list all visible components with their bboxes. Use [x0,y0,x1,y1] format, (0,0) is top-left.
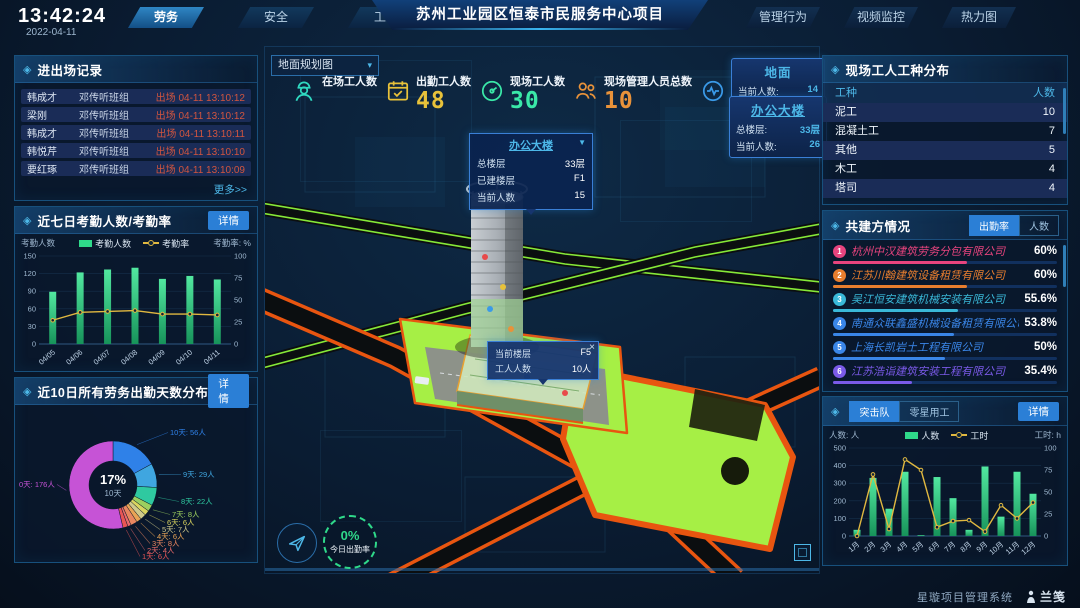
tab-odd-jobs[interactable]: 零星用工 [899,401,959,422]
svg-text:60: 60 [28,304,36,313]
stat-value: 30 [510,89,565,113]
svg-text:200: 200 [833,496,846,505]
partner-rate: 55.6% [1024,293,1057,305]
svg-text:0: 0 [32,340,36,349]
tower-tooltip-title[interactable]: 办公大楼 [477,137,585,153]
partner-rate: 60% [1034,269,1057,281]
detail-button[interactable]: 详情 [208,374,249,408]
current-date: 2022-04-11 [26,27,106,38]
partner-row: 2江苏川翰建筑设备租赁有限公司60% [823,264,1067,288]
partner-rate: 50% [1034,341,1057,353]
partner-row: 5上海长凯岩土工程有限公司50% [823,336,1067,360]
logo-text: 兰笺 [1040,588,1066,605]
entry-exit-row: 韩悦芹邓传听班组出场 04-11 13:10:10 [21,143,251,158]
entry-exit-list: 韩成才邓传听班组出场 04-11 13:10:12梁刚邓传听班组出场 04-11… [15,83,257,176]
building-card-row: 总楼层:33层 [736,122,820,136]
legend-line-swatch [143,240,159,246]
legend-bar: 人数 [905,429,939,442]
entry-exit-row: 韩成才邓传听班组出场 04-11 13:10:12 [21,89,251,104]
worker-type-row: 塔司4 [823,179,1067,198]
worker-name: 韩成才 [27,125,79,140]
tower-tooltip-row: 总楼层33层 [477,156,585,170]
panel-header: ◈ 进出场记录 [15,56,257,83]
tab-attendance-rate[interactable]: 出勤率 [969,215,1019,236]
diamond-icon: ◈ [831,63,839,76]
partner-name: 吴江恒安建筑机械安装有限公司 [851,291,1019,307]
exit-event: 出场 04-11 13:10:12 [156,89,245,104]
building-card-value: 26 [809,139,820,153]
tower-tooltip-rows: 总楼层33层已建楼层F1当前人数15 [477,156,585,204]
scrollbar[interactable] [1063,88,1066,134]
worker-icon [291,76,317,106]
legend-line: 工时 [951,429,988,442]
footer: 星璇项目管理系统 兰笺 [917,588,1066,605]
floor-tooltip-row: 当前楼层F5 [495,347,591,360]
svg-text:25: 25 [234,318,242,327]
svg-text:04/09: 04/09 [147,348,167,367]
system-name: 星璇项目管理系统 [917,589,1013,605]
legend-line-swatch [951,432,967,438]
panel-title: 近10日所有劳务出勤天数分布 [37,382,208,401]
tab-safety[interactable]: 安全 [238,7,314,28]
building-card-rows: 总楼层:33层当前人数:26 [736,122,820,153]
worker-type-name: 混凝土工 [835,122,879,141]
panel-title: 进出场记录 [37,60,102,79]
team-name: 邓传听班组 [79,107,156,122]
site-3d-viewport[interactable]: 地面规划图 ▾ 在场工人数出勤工人数48现场工人数30现场管理人员总数10异常出… [264,46,820,574]
rank-badge: 3 [833,293,846,306]
partner-rate: 35.4% [1024,365,1057,377]
svg-text:04/10: 04/10 [174,348,194,367]
tab-management-behavior[interactable]: 管理行为 [746,7,820,28]
stat-calendar: 出勤工人数48 [385,73,471,113]
floor-tooltip-rows: 当前楼层F5工人人数10人 [495,347,591,375]
tower-tooltip-row: 当前人数15 [477,190,585,204]
svg-text:100: 100 [1044,444,1057,453]
stat-value: 48 [416,89,471,113]
view-tabs: 管理行为 视频监控 热力图 [746,7,1016,28]
team-name: 邓传听班组 [79,161,156,176]
top-bar: 13:42:24 2022-04-11 劳务 安全 工期 苏州工业园区恒泰市民服… [0,0,1080,46]
rank-badge: 2 [833,269,846,282]
svg-text:50: 50 [234,296,242,305]
svg-text:100: 100 [833,514,846,523]
worker-type-row: 混凝土工7 [823,122,1067,141]
building-card-label: 当前人数: [736,139,777,153]
tower-tooltip-label: 已建楼层 [477,173,515,187]
svg-text:1月: 1月 [847,540,862,554]
worker-type-row: 木工4 [823,160,1067,179]
navigation-arrow-icon [286,532,308,554]
svg-text:150: 150 [23,252,36,261]
attendance-chart-panel: ◈ 近七日考勤人数/考勤率 详情 考勤人数 考勤人数考勤率 考勤率: % 030… [14,206,258,372]
legend-label: 考勤率 [162,237,189,250]
partner-bar-fill [833,381,912,384]
diamond-icon: ◈ [23,63,31,76]
tower-tooltip-label: 当前人数 [477,190,515,204]
partner-name: 南通众联鑫盛机械设备租赁有限公司 [851,315,1019,331]
building-card-label: 总楼层: [736,122,767,136]
stat-label: 现场工人数 [510,73,565,89]
stat-label: 在场工人数 [322,73,377,89]
svg-text:0天: 176人: 0天: 176人 [19,480,55,489]
worker-name: 梁刚 [27,107,79,122]
tab-labor[interactable]: 劳务 [128,7,204,28]
panel-title: 近七日考勤人数/考勤率 [37,211,171,230]
svg-text:17%: 17% [100,472,126,487]
rank-badge: 5 [833,341,846,354]
partner-bar-track [833,381,1057,384]
entry-exit-row: 韩成才邓传听班组出场 04-11 13:10:11 [21,125,251,140]
worker-name: 韩成才 [27,89,79,104]
entry-exit-row: 要红琢邓传听班组出场 04-11 13:10:09 [21,161,251,176]
col-worker-type: 工种 [835,83,857,103]
partners-tabs: 出勤率 人数 [969,215,1059,236]
worker-types-panel: ◈ 现场工人工种分布 工种 人数 泥工10混凝土工7其他5木工4塔司4 [822,55,1068,205]
floor-tooltip: × 当前楼层F5工人人数10人 [487,341,599,380]
col-count: 人数 [1033,83,1055,103]
legend-label: 考勤人数 [95,237,131,250]
svg-text:04/11: 04/11 [202,348,222,367]
legend-bar: 考勤人数 [79,237,131,250]
worker-types-table-body: 泥工10混凝土工7其他5木工4塔司4 [823,103,1067,198]
svg-text:04/05: 04/05 [37,348,57,367]
building-card-value: 33层 [800,122,820,136]
left-axis-label: 人数: 人 [829,429,859,441]
stat-gauge: 现场工人数30 [479,73,565,113]
chart-meta: 人数: 人 人数工时 工时: h [823,426,1067,442]
tower-tooltip-row: 已建楼层F1 [477,173,585,187]
ground-card-title: 地面 [738,62,818,81]
svg-text:120: 120 [23,269,36,278]
rank-badge: 1 [833,245,846,258]
svg-text:500: 500 [833,444,846,453]
svg-text:2月: 2月 [863,540,878,554]
partner-name: 江苏浩诣建筑安装工程有限公司 [851,363,1019,379]
svg-text:300: 300 [833,479,846,488]
svg-text:10月: 10月 [987,540,1005,557]
worker-type-count: 5 [1049,141,1055,160]
left-axis-label: 考勤人数 [21,237,55,249]
tower-tooltip-value: 33层 [565,156,585,170]
page-title: 苏州工业园区恒泰市民服务中心项目 [372,0,708,30]
exit-event: 出场 04-11 13:10:10 [156,143,245,158]
worker-type-name: 泥工 [835,103,857,122]
worker-type-count: 7 [1049,122,1055,141]
stat-worker: 在场工人数 [291,73,377,113]
attendance-bar-line-chart: 0306090120150025507510004/0504/0604/0704… [15,250,255,368]
pulse-icon [700,76,726,106]
svg-text:0: 0 [234,340,238,349]
partner-row-top: 2江苏川翰建筑设备租赁有限公司60% [833,267,1057,283]
detail-button[interactable]: 详情 [208,211,249,230]
building-card-title[interactable]: 办公大楼 [736,100,820,119]
stat-value [322,89,377,113]
entry-exit-row: 梁刚邓传听班组出场 04-11 13:10:12 [21,107,251,122]
today-attendance-gauge: 0% 今日出勤率 [323,515,377,569]
current-time: 13:42:24 [18,5,106,28]
panel-title: 共建方情况 [845,216,910,235]
tab-assault-team[interactable]: 突击队 [849,401,899,422]
worker-marker[interactable] [487,306,493,312]
partner-row: 1杭州中汉建筑劳务分包有限公司60% [823,240,1067,264]
svg-text:6月: 6月 [927,540,942,554]
worker-type-name: 木工 [835,160,857,179]
tab-video-monitor[interactable]: 视频监控 [844,7,918,28]
right-axis-label: 工时: h [1035,429,1061,441]
svg-text:04/08: 04/08 [119,348,139,367]
svg-text:0: 0 [1044,532,1048,541]
close-icon[interactable]: × [589,342,595,353]
partners-list: 1杭州中汉建筑劳务分包有限公司60%2江苏川翰建筑设备租赁有限公司60%3吴江恒… [823,240,1067,384]
worker-type-count: 4 [1049,160,1055,179]
floor-tooltip-label: 当前楼层 [495,347,531,360]
rank-badge: 6 [833,365,846,378]
svg-text:5月: 5月 [911,540,926,554]
svg-text:11月: 11月 [1004,540,1022,557]
building-card-row: 当前人数:26 [736,139,820,153]
chart-legend: 人数工时 [859,429,1034,442]
worker-type-name: 塔司 [835,179,857,198]
panel-header: ◈ 共建方情况 出勤率 人数 [823,211,1067,240]
compass-control[interactable] [277,523,317,563]
worker-type-row: 泥工10 [823,103,1067,122]
stat-label: 现场管理人员总数 [604,73,692,89]
panel-title: 现场工人工种分布 [845,60,949,79]
svg-text:4月: 4月 [895,540,910,554]
exit-event: 出场 04-11 13:10:09 [156,161,245,176]
svg-text:10天: 10天 [105,489,122,498]
panel-header: ◈ 突击队 零星用工 详情 [823,397,1067,426]
tab-heatmap[interactable]: 热力图 [942,7,1016,28]
svg-text:9月: 9月 [975,540,990,554]
clock: 13:42:24 2022-04-11 [18,5,106,38]
svg-text:90: 90 [28,287,36,296]
chevron-down-icon[interactable]: ▼ [578,138,586,147]
floor-tooltip-value: 10人 [572,362,591,375]
vendor-logo: 兰笺 [1025,588,1066,605]
svg-text:75: 75 [234,274,242,283]
gauge-value: 0% [341,529,360,543]
legend-label: 人数 [921,429,939,442]
diamond-icon: ◈ [831,405,839,418]
svg-text:8天: 22人: 8天: 22人 [181,497,213,506]
panel-header: ◈ 近10日所有劳务出勤天数分布 详情 [15,378,257,405]
svg-text:75: 75 [1044,466,1052,475]
entry-exit-panel: ◈ 进出场记录 韩成才邓传听班组出场 04-11 13:10:12梁刚邓传听班组… [14,55,258,201]
stat-value: 10 [604,89,692,113]
svg-text:50: 50 [1044,488,1052,497]
worker-name: 韩悦芹 [27,143,79,158]
partner-name: 杭州中汉建筑劳务分包有限公司 [851,243,1029,259]
worker-marker[interactable] [562,390,568,396]
detail-button[interactable]: 详情 [1018,402,1059,421]
partner-rate: 60% [1034,245,1057,257]
worker-type-row: 其他5 [823,141,1067,160]
legend-bar-swatch [905,432,918,439]
partner-row: 6江苏浩诣建筑安装工程有限公司35.4% [823,360,1067,384]
gauge-icon [479,76,505,106]
tower-tooltip-value: F1 [574,173,585,187]
diamond-icon: ◈ [23,214,31,227]
tower-tooltip-value: 15 [574,190,585,204]
worker-marker[interactable] [500,284,506,290]
more-link[interactable]: 更多>> [214,182,247,197]
team-name: 邓传听班组 [79,125,156,140]
diamond-icon: ◈ [831,219,839,232]
svg-text:7月: 7月 [943,540,958,554]
legend-line: 考勤率 [143,237,189,250]
rank-badge: 4 [833,317,846,330]
exit-event: 出场 04-11 13:10:12 [156,107,245,122]
attendance-days-distribution-panel: ◈ 近10日所有劳务出勤天数分布 详情 10天: 56人9天: 29人8天: 2… [14,377,258,563]
diamond-icon: ◈ [23,385,31,398]
chart-legend: 考勤人数考勤率 [55,237,213,250]
svg-text:0: 0 [842,532,846,541]
floor-tooltip-row: 工人人数10人 [495,362,591,375]
svg-text:8月: 8月 [959,540,974,554]
worker-types-table-header: 工种 人数 [823,83,1067,103]
assault-bar-line-chart: 010020030040050002550751001月2月3月4月5月6月7月… [823,442,1065,560]
right-axis-label: 考勤率: % [213,237,251,249]
partner-rate: 53.8% [1024,317,1057,329]
chart-meta: 考勤人数 考勤人数考勤率 考勤率: % [15,234,257,250]
partner-row-top: 1杭州中汉建筑劳务分包有限公司60% [833,243,1057,259]
svg-text:25: 25 [1044,510,1052,519]
people-icon [573,76,599,106]
svg-text:04/07: 04/07 [92,348,112,367]
tower-tooltip-label: 总楼层 [477,156,506,170]
fullscreen-icon[interactable] [794,544,811,561]
scrollbar[interactable] [1063,245,1066,287]
team-name: 邓传听班组 [79,89,156,104]
svg-text:10天: 56人: 10天: 56人 [170,428,206,437]
assault-team-panel: ◈ 突击队 零星用工 详情 人数: 人 人数工时 工时: h 010020030… [822,396,1068,566]
svg-text:400: 400 [833,461,846,470]
svg-text:1天: 6人: 1天: 6人 [142,552,170,560]
panel-header: ◈ 近七日考勤人数/考勤率 详情 [15,207,257,234]
partner-row: 4南通众联鑫盛机械设备租赁有限公司53.8% [823,312,1067,336]
tower-tooltip: 办公大楼 ▼ 总楼层33层已建楼层F1当前人数15 [469,133,593,210]
panel-header: ◈ 现场工人工种分布 [823,56,1067,83]
gauge-label: 今日出勤率 [330,544,370,555]
svg-text:04/06: 04/06 [64,348,84,367]
legend-bar-swatch [79,240,92,247]
floor-tooltip-label: 工人人数 [495,362,531,375]
team-name: 邓传听班组 [79,143,156,158]
worker-marker[interactable] [508,326,514,332]
worker-type-count: 4 [1049,179,1055,198]
svg-text:100: 100 [234,252,247,261]
partner-row-top: 4南通众联鑫盛机械设备租赁有限公司53.8% [833,315,1057,331]
partners-panel: ◈ 共建方情况 出勤率 人数 1杭州中汉建筑劳务分包有限公司60%2江苏川翰建筑… [822,210,1068,392]
assault-tabs: 突击队 零星用工 [849,401,959,422]
stat-label: 出勤工人数 [416,73,471,89]
exit-event: 出场 04-11 13:10:11 [156,125,245,140]
partner-name: 上海长凯岩土工程有限公司 [851,339,1029,355]
tab-headcount[interactable]: 人数 [1019,215,1059,236]
calendar-icon [385,76,411,106]
partner-row-top: 5上海长凯岩土工程有限公司50% [833,339,1057,355]
svg-text:3月: 3月 [879,540,894,554]
svg-text:12月: 12月 [1019,540,1037,557]
worker-name: 要红琢 [27,161,79,176]
building-info-card: 办公大楼 总楼层:33层当前人数:26 [729,96,827,158]
partner-name: 江苏川翰建筑设备租赁有限公司 [851,267,1029,283]
partner-row-top: 3吴江恒安建筑机械安装有限公司55.6% [833,291,1057,307]
worker-type-count: 10 [1043,103,1055,122]
svg-text:30: 30 [28,322,36,331]
attendance-days-donut-chart: 10天: 56人9天: 29人8天: 22人7天: 8人6天: 6人5天: 7人… [15,405,255,560]
worker-type-name: 其他 [835,141,857,160]
svg-text:9天: 29人: 9天: 29人 [183,470,215,479]
stat-people: 现场管理人员总数10 [573,73,692,113]
partner-row-top: 6江苏浩诣建筑安装工程有限公司35.4% [833,363,1057,379]
worker-marker[interactable] [482,254,488,260]
partner-row: 3吴江恒安建筑机械安装有限公司55.6% [823,288,1067,312]
logo-person-icon [1025,590,1037,604]
legend-label: 工时 [970,429,988,442]
